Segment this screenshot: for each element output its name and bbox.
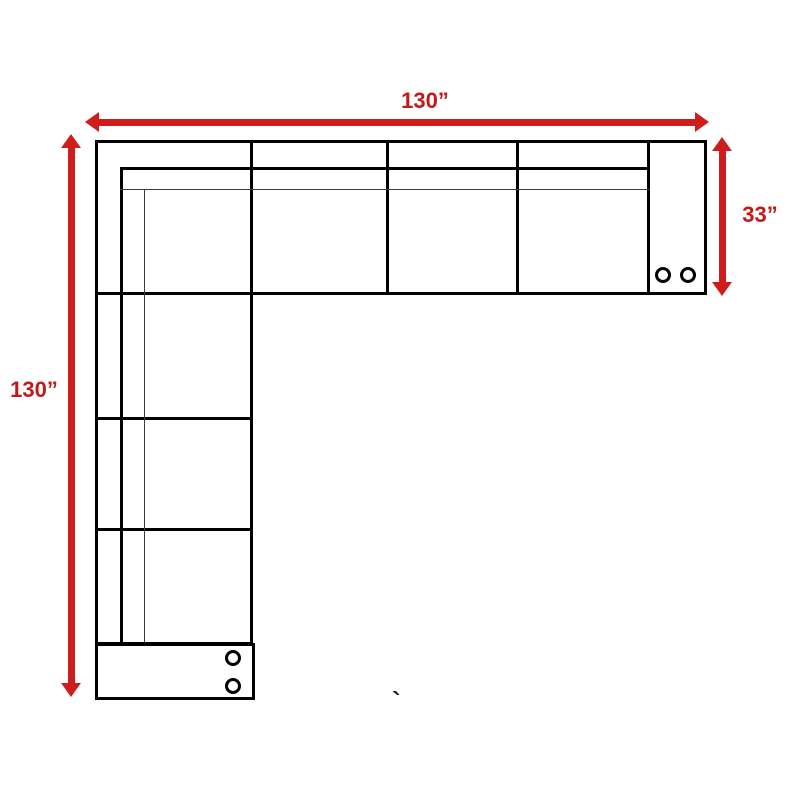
leg-circle-icon	[680, 267, 696, 283]
seat-divider-horizontal	[95, 528, 253, 531]
right-dimension-label: 33”	[725, 204, 795, 226]
stray-backtick-mark: `	[392, 688, 401, 714]
arrowhead-left-icon	[85, 112, 99, 132]
seat-divider-vertical	[386, 140, 389, 295]
left-dimension-arrow	[68, 148, 75, 683]
leg-circle-icon	[655, 267, 671, 283]
right-armrest-divider	[647, 140, 650, 295]
leg-circle-icon	[225, 650, 241, 666]
top-dimension-label: 130”	[375, 90, 475, 112]
backrest-line-vertical	[120, 167, 123, 645]
sofa-floorplan-diagram: 130” 33” 130” `	[0, 0, 800, 800]
arrowhead-up-icon	[61, 134, 81, 148]
arrowhead-down-icon	[61, 683, 81, 697]
arrowhead-up-icon	[712, 137, 732, 151]
backrest-line-horizontal	[120, 167, 650, 170]
arrowhead-down-icon	[712, 282, 732, 296]
sofa-left-column-outline	[95, 140, 253, 645]
seat-edge-line-vertical	[144, 189, 145, 645]
arrowhead-right-icon	[695, 112, 709, 132]
right-dimension-arrow	[719, 151, 726, 282]
left-dimension-label: 130”	[1, 379, 67, 401]
seat-divider-vertical	[516, 140, 519, 295]
seat-edge-line-horizontal	[120, 189, 650, 190]
seat-divider-horizontal	[95, 417, 253, 420]
leg-circle-icon	[225, 678, 241, 694]
top-dimension-arrow	[99, 119, 695, 126]
